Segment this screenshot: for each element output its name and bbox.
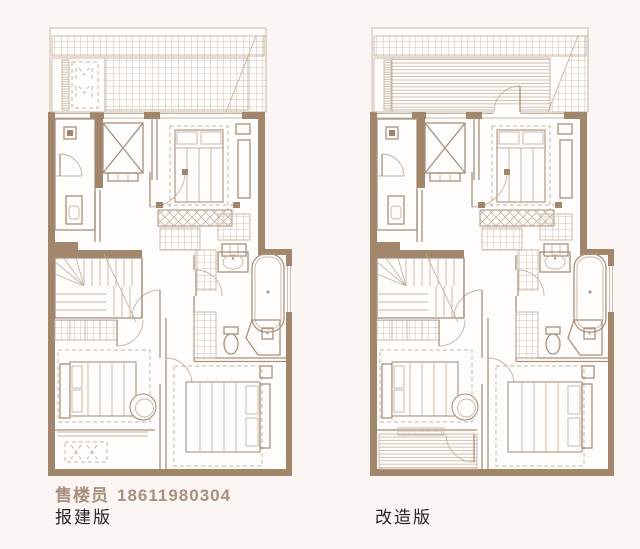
caption-approval: 报建版 — [55, 503, 112, 528]
floor-plans-drawing — [0, 0, 640, 549]
contact-phone: 18611980304 — [117, 486, 231, 505]
caption-renovated: 改造版 — [375, 503, 432, 528]
floor-plan-renovated — [370, 28, 614, 476]
floor-plan-canvas: 售楼员18611980304 报建版 改造版 — [0, 0, 640, 549]
floor-plan-approval — [48, 28, 292, 476]
